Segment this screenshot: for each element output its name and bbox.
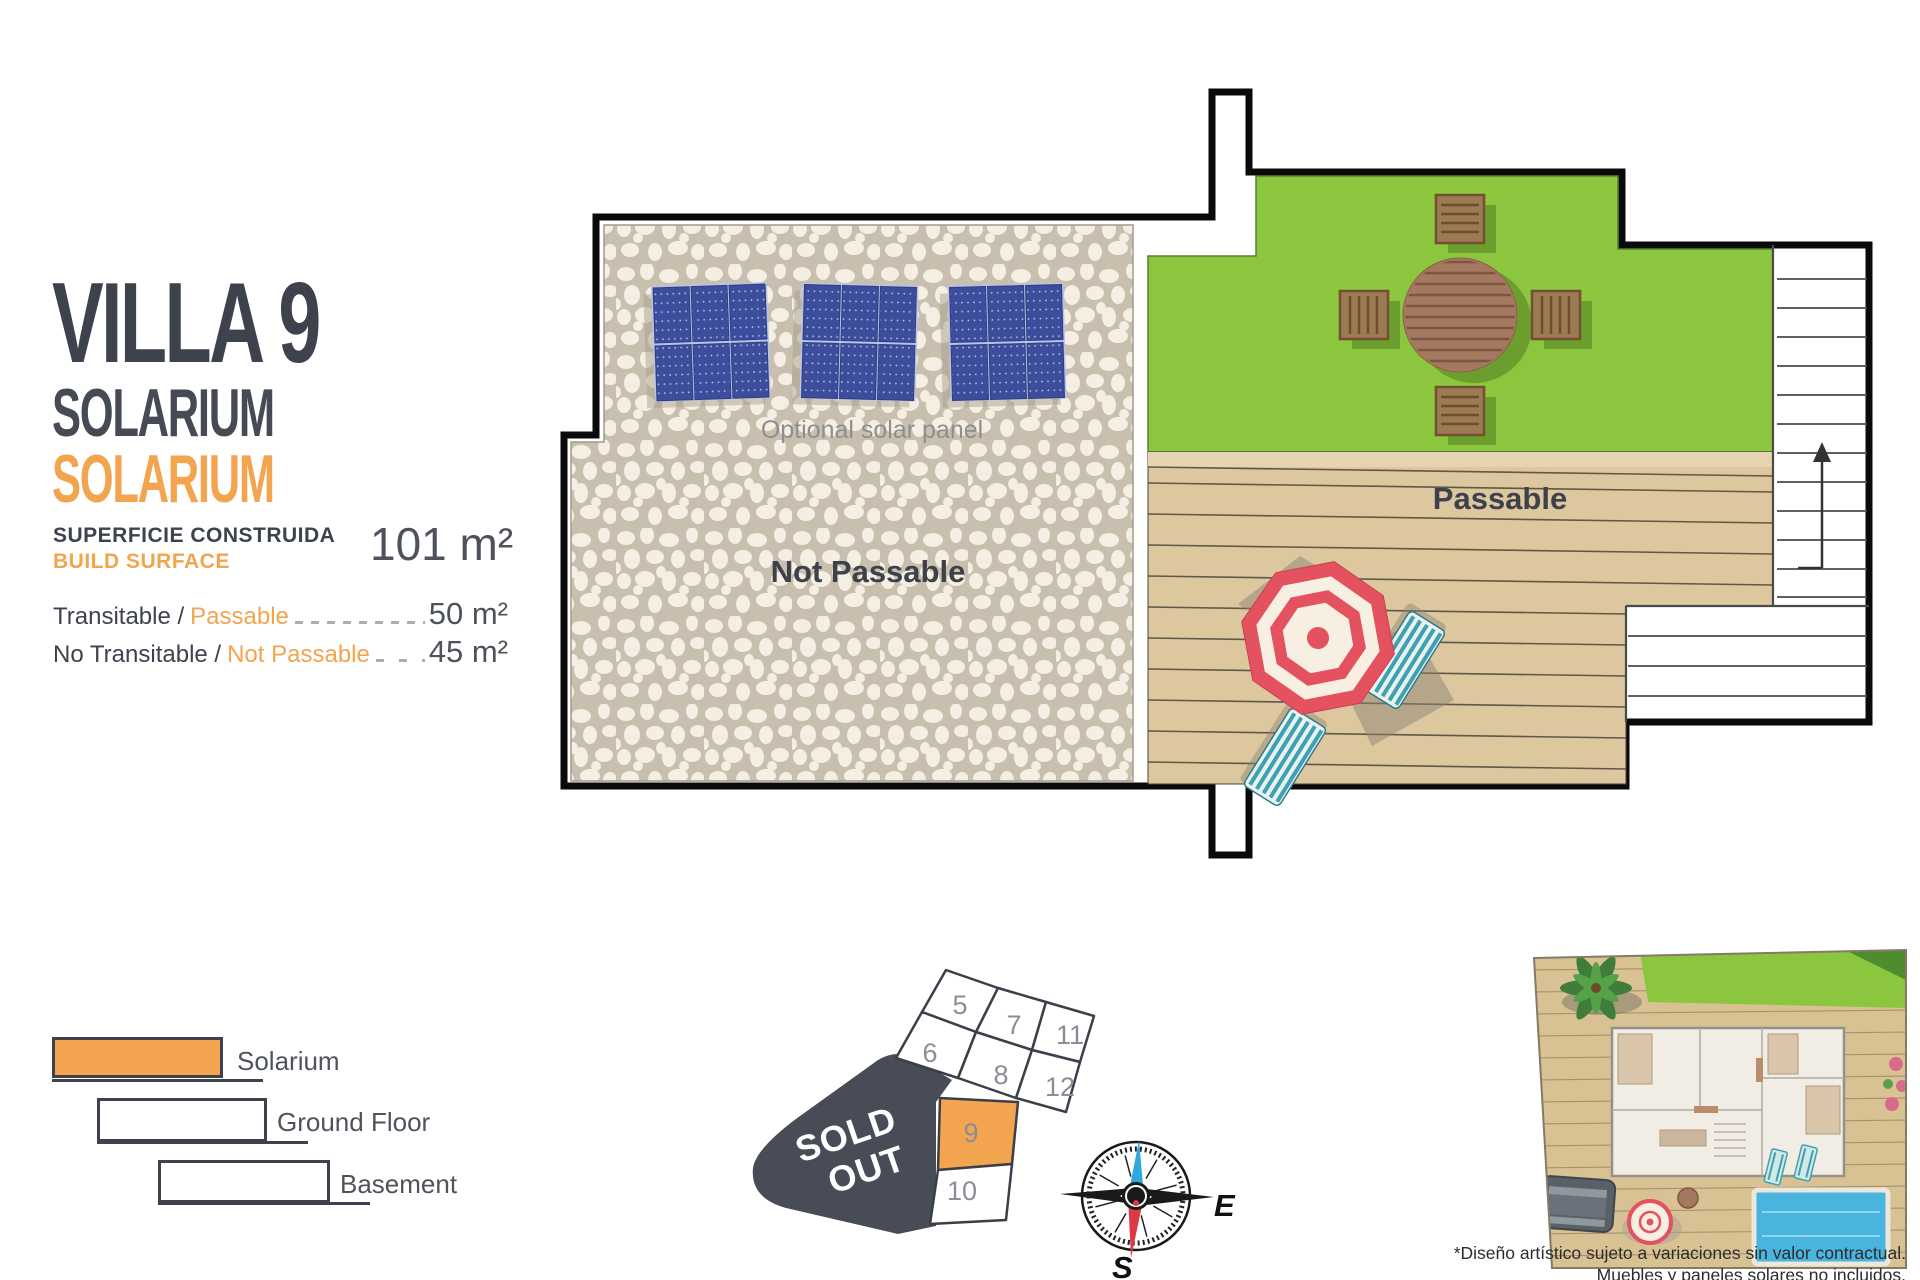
compass-east-label: E xyxy=(1214,1188,1236,1223)
area-row-passable: Transitable / Passable 50 m² xyxy=(53,596,508,632)
legend-underline xyxy=(52,1079,263,1082)
legend-underline xyxy=(158,1202,370,1205)
solar-panel-arrays xyxy=(643,282,1067,408)
plot-number: 7 xyxy=(1006,1010,1021,1040)
dotted-leader xyxy=(295,621,425,624)
passable-label: Passable xyxy=(1433,481,1567,516)
area-label-en: Not Passable xyxy=(227,641,370,669)
plot-site-map: SOLD OUT 5 7 11 6 8 12 9 10 xyxy=(753,970,1094,1234)
disclaimer-line1: *Diseño artístico sujeto a variaciones s… xyxy=(1454,1242,1906,1264)
legend-box-ground-floor[interactable] xyxy=(97,1098,267,1142)
plot-number: 6 xyxy=(922,1038,937,1068)
build-surface-value: 101 m² xyxy=(370,517,513,571)
solar-panel-icon xyxy=(791,282,918,407)
disclaimer-line2: Muebles y paneles solares no incluidos. xyxy=(1454,1264,1906,1280)
solar-panel-icon xyxy=(940,283,1067,408)
area-label-es: No Transitable / xyxy=(53,641,221,669)
legend-underline xyxy=(97,1141,308,1144)
compass-south-label: S xyxy=(1112,1250,1133,1280)
plot-number: 10 xyxy=(947,1176,977,1206)
plot-number: 5 xyxy=(952,990,967,1020)
area-value: 45 m² xyxy=(429,634,508,670)
solar-panel-icon xyxy=(643,282,771,408)
villa-thumbnail xyxy=(1530,948,1910,1272)
area-value: 50 m² xyxy=(429,596,508,632)
legend-box-solarium[interactable] xyxy=(52,1037,223,1078)
legend-label-ground-floor[interactable]: Ground Floor xyxy=(277,1107,430,1138)
legend-box-basement[interactable] xyxy=(158,1160,330,1203)
plot-number: 11 xyxy=(1056,1020,1084,1050)
build-surface-label-en: BUILD SURFACE xyxy=(53,549,230,574)
dotted-leader xyxy=(376,659,425,662)
area-label-en: Passable xyxy=(190,603,289,631)
area-label-es: Transitable / xyxy=(53,603,184,631)
build-surface-label-es: SUPERFICIE CONSTRUIDA xyxy=(53,523,335,548)
plot-number: 12 xyxy=(1045,1072,1075,1102)
solarium-floor-plan: Optional solar panel Not Passable xyxy=(564,92,1869,855)
legend-label-basement[interactable]: Basement xyxy=(340,1169,457,1200)
not-passable-label: Not Passable xyxy=(771,554,966,589)
plot-number: 8 xyxy=(993,1060,1008,1090)
legend-label-solarium[interactable]: Solarium xyxy=(237,1046,340,1077)
subtitle-solarium-accent: SOLARIUM xyxy=(52,453,274,505)
area-row-not-passable: No Transitable / Not Passable 45 m² xyxy=(53,634,508,670)
page: Optional solar panel Not Passable xyxy=(0,0,1920,1280)
compass-rose-icon: E S xyxy=(1060,1140,1236,1280)
optional-solar-label: Optional solar panel xyxy=(761,416,983,444)
plot-number: 9 xyxy=(963,1118,978,1148)
disclaimer: *Diseño artístico sujeto a variaciones s… xyxy=(1454,1242,1906,1280)
page-title: VILLA 9 xyxy=(52,281,319,367)
subtitle-solarium-en: SOLARIUM xyxy=(52,387,274,439)
